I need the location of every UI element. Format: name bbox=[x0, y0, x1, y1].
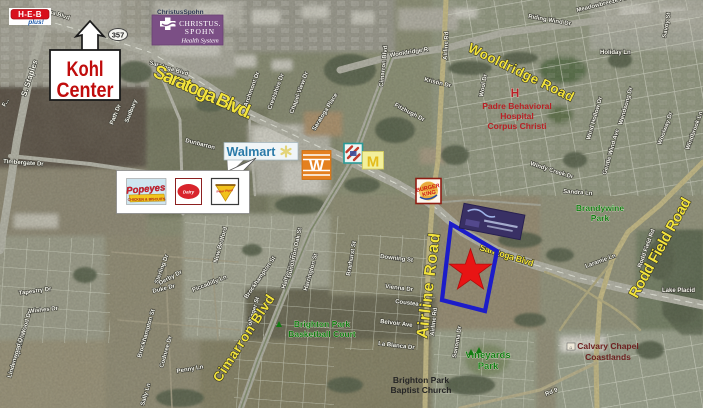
svg-text:Brandywine: Brandywine bbox=[576, 203, 624, 213]
svg-text:Brighton Park: Brighton Park bbox=[294, 319, 350, 329]
svg-text:Baptist Church: Baptist Church bbox=[391, 385, 452, 395]
svg-text:W: W bbox=[309, 158, 325, 175]
svg-text:Health System: Health System bbox=[180, 38, 219, 45]
svg-text:Brighton Park: Brighton Park bbox=[393, 375, 449, 385]
svg-text:Padre Behavioral: Padre Behavioral bbox=[482, 101, 551, 111]
svg-text:Park: Park bbox=[478, 361, 499, 372]
svg-text:H-E-B: H-E-B bbox=[18, 10, 42, 19]
svg-text:Park: Park bbox=[591, 213, 610, 223]
svg-text:Kohl: Kohl bbox=[67, 58, 104, 81]
svg-text:Lake Placid: Lake Placid bbox=[662, 288, 695, 294]
svg-text:Basketball Court: Basketball Court bbox=[288, 329, 356, 339]
svg-text:Dairy: Dairy bbox=[183, 190, 195, 195]
svg-text:Calvary Chapel: Calvary Chapel bbox=[577, 341, 638, 351]
svg-text:CHICKEN & BISCUITS: CHICKEN & BISCUITS bbox=[128, 197, 166, 202]
svg-text:plus!: plus! bbox=[27, 19, 44, 26]
svg-text:Hospital: Hospital bbox=[500, 111, 534, 121]
svg-text:H: H bbox=[511, 86, 520, 100]
svg-text:Coastlands: Coastlands bbox=[585, 352, 631, 362]
svg-text:Holiday Ln: Holiday Ln bbox=[600, 50, 631, 56]
svg-text:Center: Center bbox=[57, 79, 114, 102]
svg-text:SPOHN: SPOHN bbox=[185, 27, 216, 36]
svg-text:Walmart: Walmart bbox=[227, 145, 277, 159]
svg-text:Corpus Christi: Corpus Christi bbox=[487, 121, 546, 131]
svg-text:M: M bbox=[367, 154, 380, 171]
svg-text:357: 357 bbox=[112, 31, 125, 40]
svg-text:⌂: ⌂ bbox=[569, 345, 572, 351]
